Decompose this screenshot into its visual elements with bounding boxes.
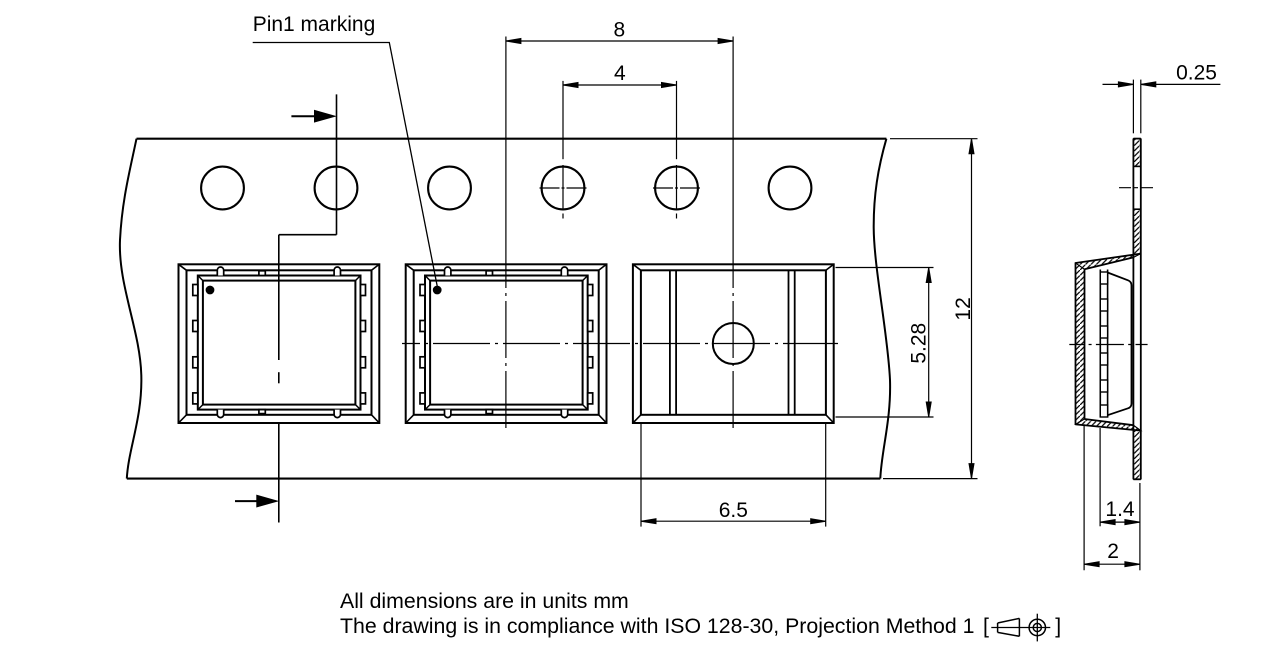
svg-text:4: 4 [614,62,626,85]
svg-text:All dimensions are in units mm: All dimensions are in units mm [340,589,629,613]
svg-text:2: 2 [1107,540,1119,563]
svg-text:0.25: 0.25 [1176,62,1217,85]
svg-text:The drawing is in compliance w: The drawing is in compliance with ISO 12… [340,614,975,638]
svg-text:]: ] [1055,614,1061,638]
svg-text:8: 8 [614,18,626,41]
svg-text:5.28: 5.28 [908,323,931,364]
svg-text:6.5: 6.5 [719,499,748,522]
svg-text:Pin1 marking: Pin1 marking [253,13,376,36]
svg-text:1.4: 1.4 [1105,498,1135,521]
svg-text:12: 12 [952,297,975,320]
svg-text:[: [ [983,614,989,638]
